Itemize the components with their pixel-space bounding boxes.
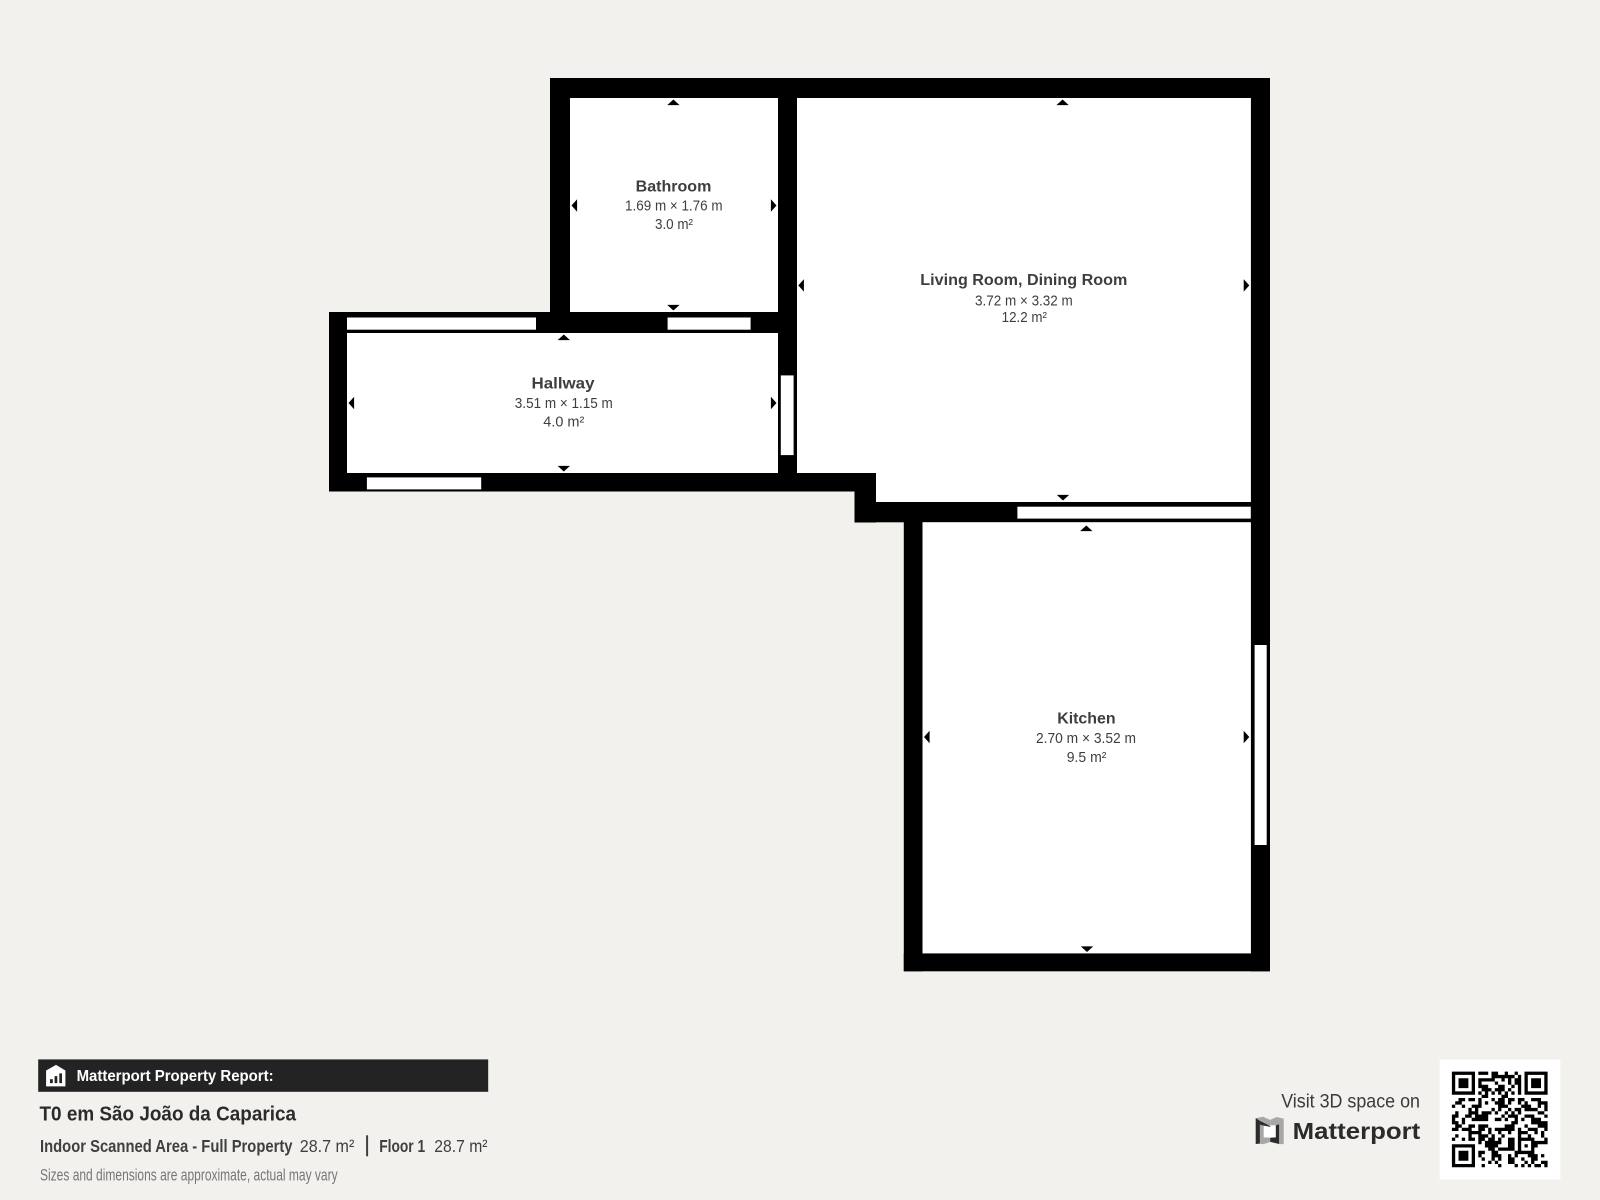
svg-text:Matterport: Matterport [1293, 1118, 1421, 1144]
svg-text:Matterport Property Report:: Matterport Property Report: [77, 1068, 274, 1085]
svg-text:2.70 m × 3.52 m: 2.70 m × 3.52 m [1036, 731, 1136, 747]
svg-text:Living Room, Dining Room: Living Room, Dining Room [920, 272, 1127, 289]
svg-text:Visit 3D space on: Visit 3D space on [1281, 1090, 1420, 1112]
svg-text:T0 em São João da Caparica: T0 em São João da Caparica [40, 1103, 297, 1125]
svg-text:Kitchen: Kitchen [1057, 710, 1115, 727]
svg-text:Indoor Scanned Area - Full Pro: Indoor Scanned Area - Full Property [40, 1136, 293, 1156]
svg-text:3.0 m²: 3.0 m² [655, 217, 693, 233]
svg-text:3.51 m × 1.15 m: 3.51 m × 1.15 m [515, 396, 613, 412]
svg-text:3.72 m × 3.32 m: 3.72 m × 3.32 m [975, 293, 1073, 309]
svg-text:28.7 m²: 28.7 m² [300, 1136, 355, 1156]
svg-text:Bathroom: Bathroom [636, 178, 712, 195]
svg-text:1.69 m × 1.76 m: 1.69 m × 1.76 m [625, 199, 723, 215]
svg-text:12.2 m²: 12.2 m² [1002, 310, 1047, 326]
svg-text:Sizes and dimensions are appro: Sizes and dimensions are approximate, ac… [40, 1166, 338, 1184]
svg-text:Floor 1: Floor 1 [379, 1136, 425, 1156]
svg-text:Hallway: Hallway [532, 375, 595, 392]
svg-text:28.7 m²: 28.7 m² [434, 1136, 487, 1156]
svg-text:9.5 m²: 9.5 m² [1067, 750, 1107, 766]
svg-text:4.0 m²: 4.0 m² [543, 415, 584, 431]
